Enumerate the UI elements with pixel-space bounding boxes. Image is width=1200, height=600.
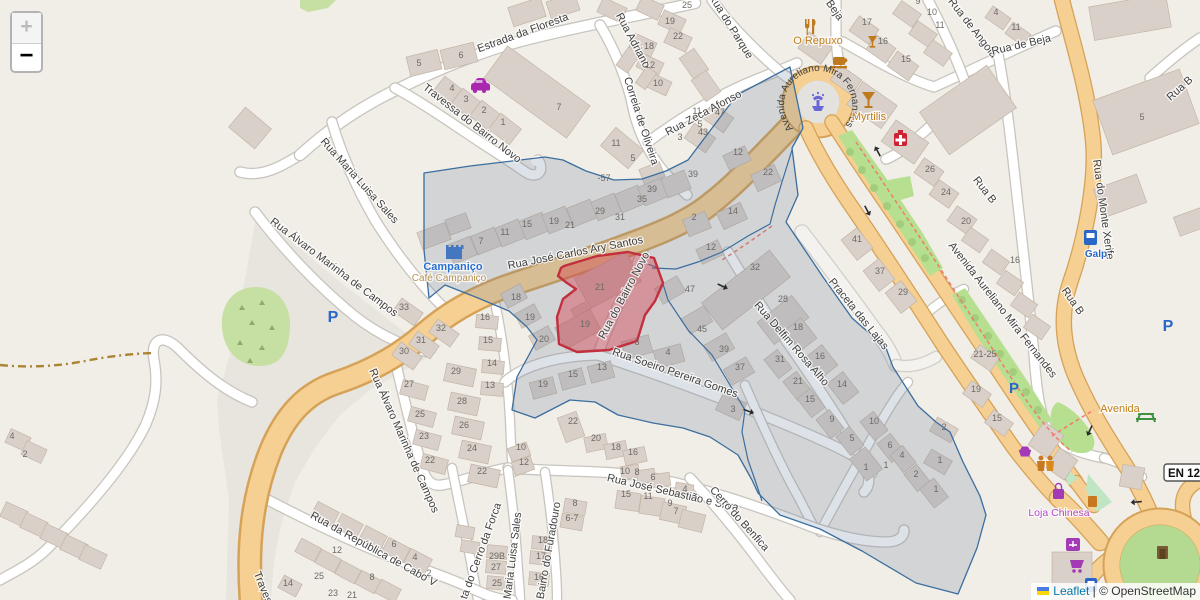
svg-text:16: 16 (628, 447, 638, 457)
svg-text:47: 47 (715, 107, 725, 117)
svg-text:28: 28 (457, 396, 467, 406)
svg-text:39: 39 (647, 184, 657, 194)
svg-text:30: 30 (399, 346, 409, 356)
svg-text:47: 47 (685, 284, 695, 294)
svg-text:16: 16 (534, 572, 544, 582)
svg-text:25: 25 (492, 578, 502, 588)
svg-text:33: 33 (399, 302, 409, 312)
svg-text:12: 12 (519, 457, 529, 467)
svg-text:18: 18 (511, 292, 521, 302)
svg-text:4: 4 (9, 431, 14, 441)
svg-text:15: 15 (522, 219, 532, 229)
svg-text:21: 21 (565, 220, 575, 230)
svg-text:35: 35 (637, 194, 647, 204)
svg-text:14: 14 (837, 379, 847, 389)
svg-text:21: 21 (793, 376, 803, 386)
svg-text:23: 23 (328, 588, 338, 598)
svg-text:24: 24 (467, 443, 477, 453)
svg-text:4: 4 (449, 83, 454, 93)
svg-text:17: 17 (536, 551, 546, 561)
svg-text:5: 5 (630, 153, 635, 163)
svg-text:37: 37 (875, 266, 885, 276)
svg-text:6: 6 (887, 440, 892, 450)
svg-text:43: 43 (698, 127, 708, 137)
svg-text:1: 1 (933, 484, 938, 494)
svg-text:29B: 29B (489, 551, 505, 561)
svg-text:26: 26 (925, 164, 935, 174)
svg-text:5: 5 (849, 433, 854, 443)
svg-text:1: 1 (500, 117, 505, 127)
svg-text:15: 15 (568, 369, 578, 379)
svg-text:4: 4 (665, 347, 670, 357)
svg-text:8: 8 (572, 498, 577, 508)
svg-text:2: 2 (22, 449, 27, 459)
svg-text:8: 8 (369, 572, 374, 582)
svg-text:4: 4 (412, 552, 417, 562)
svg-text:32: 32 (436, 323, 446, 333)
svg-text:15: 15 (992, 413, 1002, 423)
svg-text:12: 12 (733, 147, 743, 157)
svg-text:4: 4 (682, 484, 687, 494)
svg-text:14: 14 (728, 206, 738, 216)
svg-text:Campaniço: Campaniço (423, 261, 483, 273)
svg-text:10: 10 (653, 78, 663, 88)
svg-text:29: 29 (595, 206, 605, 216)
svg-text:P: P (1163, 318, 1174, 335)
svg-text:11: 11 (935, 20, 944, 30)
svg-text:3: 3 (463, 94, 468, 104)
svg-text:16: 16 (878, 36, 888, 46)
svg-text:8: 8 (634, 467, 639, 477)
svg-text:2: 2 (941, 422, 946, 432)
svg-text:15: 15 (621, 489, 631, 499)
svg-text:21: 21 (595, 282, 605, 292)
svg-text:20: 20 (591, 433, 601, 443)
svg-text:9: 9 (915, 0, 920, 6)
svg-text:4: 4 (899, 450, 904, 460)
svg-text:45: 45 (697, 324, 707, 334)
svg-text:17: 17 (862, 17, 872, 27)
svg-text:20: 20 (961, 216, 971, 226)
svg-text:12: 12 (332, 545, 342, 555)
svg-text:7: 7 (673, 506, 678, 516)
svg-text:19: 19 (549, 216, 559, 226)
svg-text:EN 12: EN 12 (1168, 468, 1200, 480)
svg-text:19: 19 (580, 319, 590, 329)
svg-text:11: 11 (500, 227, 509, 237)
svg-text:Avenida: Avenida (1100, 403, 1140, 415)
svg-text:14: 14 (283, 578, 293, 588)
svg-text:37: 37 (735, 362, 745, 372)
svg-text:16: 16 (480, 312, 490, 322)
svg-text:21: 21 (347, 590, 357, 600)
svg-text:10: 10 (516, 442, 526, 452)
svg-text:4: 4 (993, 7, 998, 17)
svg-text:14: 14 (487, 358, 497, 368)
svg-text:1: 1 (883, 460, 888, 470)
svg-text:11: 11 (1011, 22, 1020, 32)
svg-text:15: 15 (483, 335, 493, 345)
svg-text:10: 10 (620, 466, 630, 476)
svg-text:22: 22 (568, 416, 578, 426)
svg-text:9: 9 (829, 414, 834, 424)
svg-text:31: 31 (775, 354, 785, 364)
svg-text:6: 6 (650, 472, 655, 482)
svg-text:15: 15 (805, 394, 815, 404)
svg-text:2: 2 (426, 568, 431, 578)
svg-text:19: 19 (538, 379, 548, 389)
svg-text:6: 6 (391, 539, 396, 549)
svg-text:22: 22 (673, 31, 683, 41)
svg-text:18: 18 (611, 442, 621, 452)
svg-text:11: 11 (643, 491, 652, 501)
svg-text:18: 18 (644, 41, 654, 51)
svg-text:5: 5 (416, 58, 421, 68)
svg-text:31: 31 (416, 335, 426, 345)
svg-text:12: 12 (645, 60, 655, 70)
svg-text:22: 22 (425, 455, 435, 465)
svg-text:25: 25 (415, 409, 425, 419)
svg-text:11: 11 (611, 138, 620, 148)
svg-text:25: 25 (682, 0, 692, 10)
svg-text:24: 24 (941, 187, 951, 197)
svg-text:16: 16 (815, 351, 825, 361)
svg-text:32: 32 (750, 262, 760, 272)
svg-text:2: 2 (691, 212, 696, 222)
svg-text:3: 3 (730, 404, 735, 414)
svg-text:22: 22 (477, 466, 487, 476)
svg-text:O Repuxo: O Repuxo (793, 35, 843, 47)
svg-text:1: 1 (937, 455, 942, 465)
svg-text:29: 29 (451, 366, 461, 376)
svg-text:P: P (328, 309, 339, 326)
svg-text:25: 25 (314, 571, 324, 581)
svg-text:18: 18 (538, 535, 548, 545)
svg-text:16: 16 (1010, 255, 1020, 265)
svg-text:7: 7 (556, 102, 561, 112)
svg-text:Loja Chinesa: Loja Chinesa (1028, 507, 1089, 519)
svg-text:29: 29 (898, 287, 908, 297)
svg-text:P: P (1009, 380, 1019, 397)
svg-text:26: 26 (459, 420, 469, 430)
svg-text:9: 9 (667, 498, 672, 508)
svg-text:Café Campaniço: Café Campaniço (412, 273, 487, 284)
svg-text:3: 3 (677, 132, 682, 142)
svg-text:7: 7 (478, 236, 483, 246)
svg-text:Galp: Galp (1085, 249, 1107, 260)
svg-text:19: 19 (665, 16, 675, 26)
svg-text:19: 19 (525, 312, 535, 322)
svg-text:41: 41 (852, 234, 862, 244)
svg-text:-57: -57 (597, 173, 610, 183)
svg-text:10: 10 (869, 416, 879, 426)
svg-text:18: 18 (793, 322, 803, 332)
svg-text:6: 6 (634, 337, 639, 347)
svg-text:23: 23 (419, 431, 429, 441)
svg-text:12: 12 (706, 242, 716, 252)
svg-text:20: 20 (539, 334, 549, 344)
svg-text:10: 10 (927, 7, 937, 17)
svg-text:31: 31 (615, 212, 625, 222)
svg-text:39: 39 (688, 169, 698, 179)
svg-text:39: 39 (719, 344, 729, 354)
svg-text:21-25: 21-25 (973, 349, 996, 359)
svg-text:27: 27 (491, 562, 501, 572)
svg-text:1: 1 (863, 462, 868, 472)
svg-text:Myrtilis: Myrtilis (852, 111, 887, 123)
svg-text:2: 2 (481, 105, 486, 115)
svg-text:13: 13 (597, 362, 607, 372)
svg-text:5: 5 (1139, 112, 1144, 122)
svg-text:15: 15 (901, 54, 911, 64)
svg-text:2: 2 (913, 469, 918, 479)
svg-text:27: 27 (404, 379, 414, 389)
svg-text:11: 11 (692, 106, 701, 116)
svg-text:13: 13 (485, 380, 495, 390)
svg-text:19: 19 (971, 384, 981, 394)
svg-text:28: 28 (778, 294, 788, 304)
svg-text:6-7: 6-7 (565, 513, 578, 523)
svg-text:22: 22 (763, 167, 773, 177)
svg-text:6: 6 (458, 50, 463, 60)
